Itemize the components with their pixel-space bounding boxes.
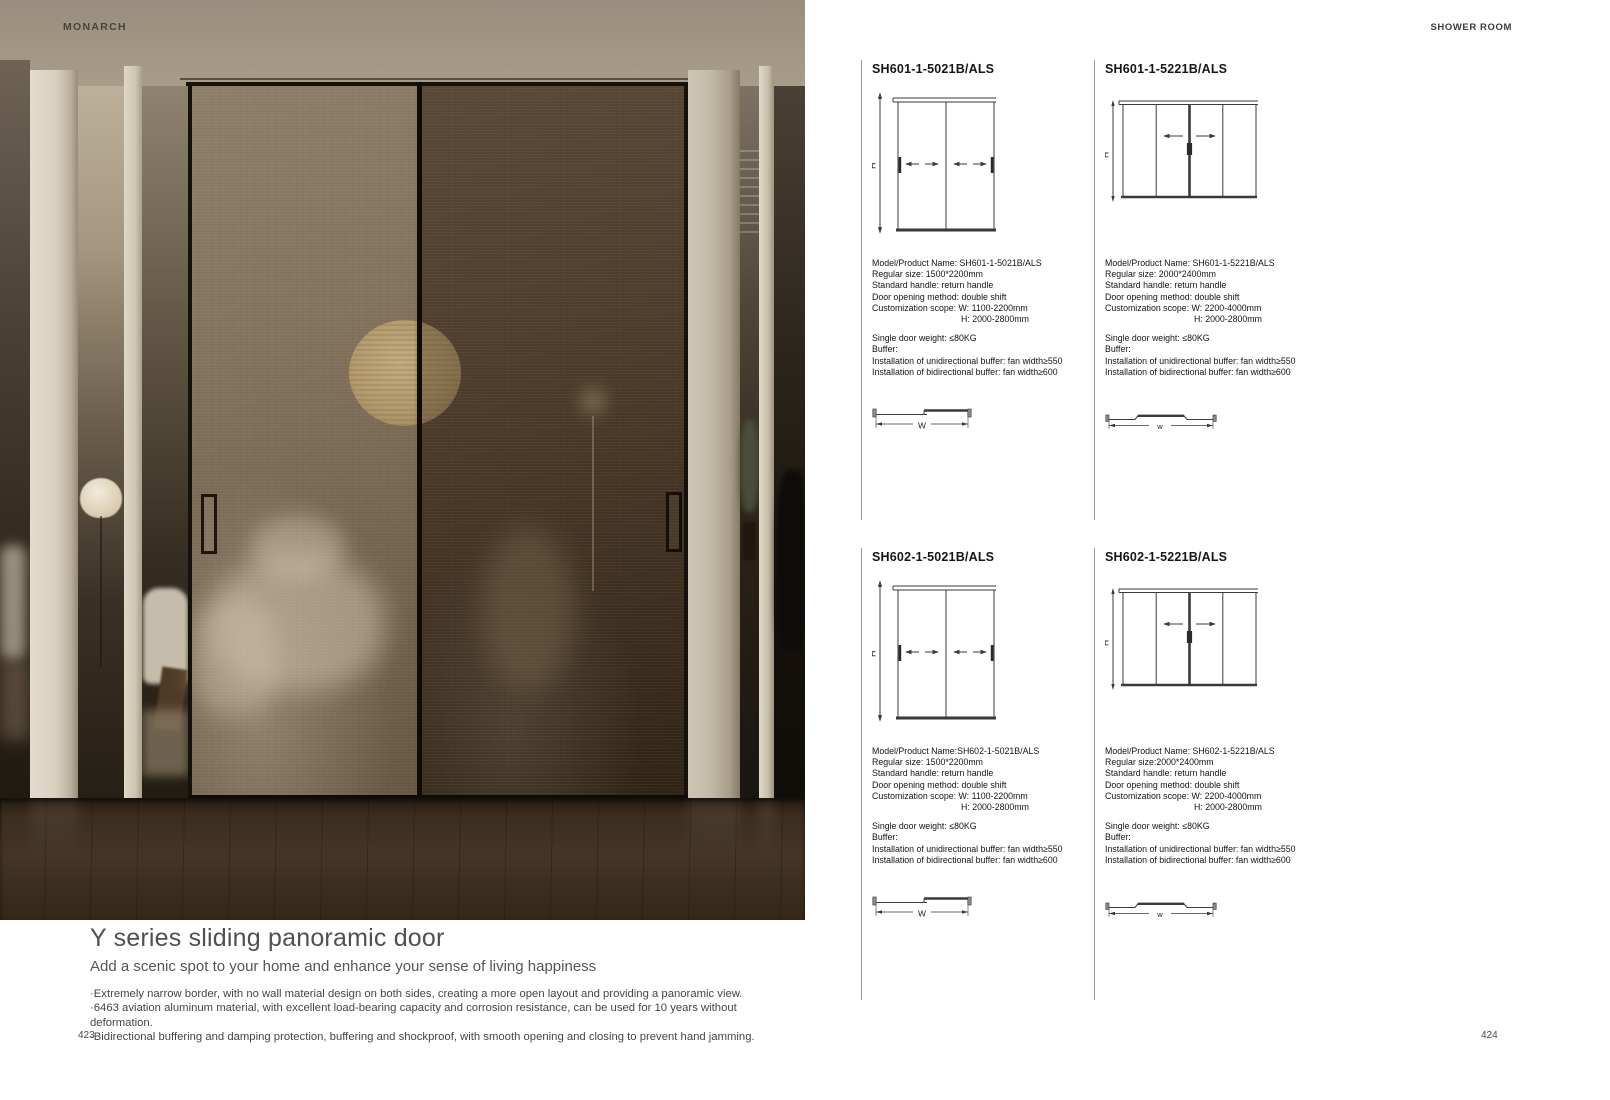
- spec-line: Installation of bidirectional buffer: fa…: [1105, 855, 1341, 866]
- spec-line: Door opening method: double shift: [1105, 292, 1341, 303]
- product-title: SH602-1-5221B/ALS: [1105, 550, 1341, 564]
- track-plan-diagram: w: [1105, 404, 1341, 440]
- width-plan-diagram: w: [1105, 409, 1217, 435]
- width-dimension-label: w: [1156, 910, 1163, 919]
- page-subtitle: Add a scenic spot to your home and enhan…: [90, 958, 770, 975]
- door-frame-top: [186, 82, 688, 86]
- spec-line: H: 2000-2800mm: [872, 314, 1108, 325]
- spec-line: Model/Product Name: SH601-1-5221B/ALS: [1105, 258, 1341, 269]
- photo-floor-reflection: [759, 800, 774, 858]
- height-dimension-label: H: [872, 163, 878, 170]
- spec-line: Standard handle: return handle: [872, 768, 1108, 779]
- spec-line: Installation of bidirectional buffer: fa…: [872, 855, 1108, 866]
- height-dimension-label: H: [1105, 640, 1111, 646]
- spec-line: Buffer:: [1105, 832, 1341, 843]
- photo-ceiling: [0, 0, 805, 86]
- spec-line: Installation of unidirectional buffer: f…: [872, 844, 1108, 855]
- width-plan-diagram: W: [872, 404, 972, 438]
- width-dimension-label: w: [1156, 422, 1163, 431]
- width-plan-diagram: w: [1105, 897, 1217, 923]
- photo-pampas-silhouette: [482, 526, 574, 691]
- showcase-photo: MONARCH: [0, 0, 805, 920]
- photo-left-column: [30, 70, 78, 822]
- caption-block: Y series sliding panoramic door Add a sc…: [90, 924, 770, 1045]
- product-title: SH601-1-5221B/ALS: [1105, 62, 1341, 76]
- sliding-door-right-panel: [420, 86, 686, 800]
- spec-line: Single door weight: ≤80KG: [872, 333, 1108, 344]
- photo-dark-chair-silhouette: [776, 470, 805, 650]
- track-plan-diagram: W: [872, 892, 1108, 931]
- spec-line: Regular size: 1500*2200mm: [872, 757, 1108, 768]
- photo-floor-reflection: [688, 800, 740, 858]
- photo-floor-reflection: [30, 800, 78, 858]
- four-panel-door-diagram: H: [1105, 580, 1261, 696]
- spec-line: Regular size: 1500*2200mm: [872, 269, 1108, 280]
- spec-line: Model/Product Name: SH601-1-5021B/ALS: [872, 258, 1108, 269]
- height-dimension-label: H: [1105, 152, 1111, 158]
- buffer-specs: Single door weight: ≤80KG Buffer: Instal…: [872, 333, 1108, 378]
- photo-floor-lamp-stand: [100, 516, 102, 666]
- width-dimension-label: W: [918, 909, 926, 919]
- feature-bullets: ·Extremely narrow border, with no wall m…: [90, 987, 770, 1045]
- spec-line: Installation of bidirectional buffer: fa…: [872, 367, 1108, 378]
- spec-line: Buffer:: [1105, 344, 1341, 355]
- product-block-sh602-1-5221b: SH602-1-5221B/ALS H Model/Product Name: …: [1094, 548, 1341, 1000]
- page-number-left: 423: [78, 1030, 95, 1041]
- product-specs: Model/Product Name: SH601-1-5221B/ALS Re…: [1105, 258, 1341, 325]
- spec-line: Single door weight: ≤80KG: [1105, 333, 1341, 344]
- door-elevation-diagram: H: [1105, 90, 1341, 258]
- photo-left-pilaster: [124, 66, 142, 826]
- product-block-sh602-1-5021b: SH602-1-5021B/ALS H Model/Product Name:S…: [861, 548, 1108, 1000]
- spec-line: Buffer:: [872, 832, 1108, 843]
- product-specs: Model/Product Name:SH602-1-5021B/ALS Reg…: [872, 746, 1108, 813]
- spec-line: Single door weight: ≤80KG: [872, 821, 1108, 832]
- height-dimension-label: H: [872, 651, 878, 658]
- door-top-track: [180, 78, 694, 80]
- spec-line: Door opening method: double shift: [872, 292, 1108, 303]
- spec-line: Standard handle: return handle: [872, 280, 1108, 291]
- photo-sliver-chair: [0, 545, 26, 660]
- door-handle-left: [201, 494, 217, 554]
- buffer-specs: Single door weight: ≤80KG Buffer: Instal…: [1105, 821, 1341, 866]
- photo-wood-floor: [0, 798, 805, 920]
- section-header: SHOWER ROOM: [1430, 22, 1512, 33]
- width-dimension-label: W: [918, 421, 926, 431]
- door-elevation-diagram: H: [1105, 578, 1341, 746]
- spec-line: Door opening method: double shift: [1105, 780, 1341, 791]
- spec-line: H: 2000-2800mm: [1105, 802, 1341, 813]
- track-plan-diagram: W: [872, 404, 1108, 443]
- spec-line: Installation of unidirectional buffer: f…: [1105, 356, 1341, 367]
- photo-right-dark-area: [774, 86, 805, 820]
- photo-table-items: [743, 522, 756, 560]
- product-title: SH602-1-5021B/ALS: [872, 550, 1108, 564]
- photo-ac-vents: [740, 150, 759, 235]
- spec-line: Customization scope: W: 2200-4000mm: [1105, 791, 1341, 802]
- product-block-sh601-1-5221b: SH601-1-5221B/ALS H Model/Product Name: …: [1094, 60, 1341, 520]
- spec-line: Customization scope: W: 2200-4000mm: [1105, 303, 1341, 314]
- photo-plant: [740, 420, 759, 512]
- spec-line: Regular size:2000*2400mm: [1105, 757, 1341, 768]
- brand-logo: MONARCH: [63, 21, 127, 33]
- feature-bullet: ·Extremely narrow border, with no wall m…: [90, 987, 770, 1001]
- spec-page: SHOWER ROOM SH601-1-5021B/ALS H Model/Pr…: [805, 0, 1610, 1100]
- feature-bullet: ·6463 aviation aluminum material, with e…: [90, 1001, 770, 1030]
- width-plan-diagram: W: [872, 892, 972, 926]
- spec-line: Customization scope: W: 1100-2200mm: [872, 791, 1108, 802]
- photo-lamp-pole-silhouette: [592, 416, 594, 591]
- track-plan-diagram: w: [1105, 892, 1341, 928]
- buffer-specs: Single door weight: ≤80KG Buffer: Instal…: [1105, 333, 1341, 378]
- photo-floor-lamp-shade: [80, 478, 122, 518]
- spec-line: H: 2000-2800mm: [1105, 314, 1341, 325]
- photo-cushion-reflection: [250, 516, 345, 578]
- buffer-specs: Single door weight: ≤80KG Buffer: Instal…: [872, 821, 1108, 866]
- photo-right-pilaster: [759, 66, 774, 828]
- photo-sliver-floor: [0, 660, 30, 740]
- spec-line: Installation of unidirectional buffer: f…: [872, 356, 1108, 367]
- photo-moon-lantern: [349, 320, 461, 426]
- door-handle-right: [666, 492, 682, 552]
- spec-line: Regular size: 2000*2400mm: [1105, 269, 1341, 280]
- spec-line: Installation of unidirectional buffer: f…: [1105, 844, 1341, 855]
- four-panel-door-diagram: H: [1105, 92, 1261, 208]
- product-block-sh601-1-5021b: SH601-1-5021B/ALS H Model/Product Name: …: [861, 60, 1108, 520]
- spec-line: H: 2000-2800mm: [872, 802, 1108, 813]
- photo-rug: [142, 710, 189, 776]
- door-elevation-diagram: H: [872, 90, 1108, 258]
- spec-line: Model/Product Name: SH602-1-5221B/ALS: [1105, 746, 1341, 757]
- spec-line: Customization scope: W: 1100-2200mm: [872, 303, 1108, 314]
- spec-line: Single door weight: ≤80KG: [1105, 821, 1341, 832]
- page-title: Y series sliding panoramic door: [90, 924, 770, 953]
- door-elevation-diagram: H: [872, 578, 1108, 746]
- spec-line: Model/Product Name:SH602-1-5021B/ALS: [872, 746, 1108, 757]
- door-frame-left: [188, 82, 192, 802]
- two-panel-door-diagram: H: [872, 90, 998, 236]
- spec-line: Standard handle: return handle: [1105, 280, 1341, 291]
- photo-lamp-glow: [580, 388, 606, 414]
- product-specs: Model/Product Name: SH602-1-5221B/ALS Re…: [1105, 746, 1341, 813]
- product-title: SH601-1-5021B/ALS: [872, 62, 1108, 76]
- two-panel-door-diagram: H: [872, 578, 998, 724]
- door-frame-middle: [417, 82, 422, 802]
- product-specs: Model/Product Name: SH601-1-5021B/ALS Re…: [872, 258, 1108, 325]
- spec-line: Installation of bidirectional buffer: fa…: [1105, 367, 1341, 378]
- spec-line: Standard handle: return handle: [1105, 768, 1341, 779]
- page-number-right: 424: [1481, 1030, 1498, 1041]
- photo-right-column: [688, 70, 740, 822]
- photo-sofa-arm-reflection: [192, 600, 277, 715]
- spec-line: Door opening method: double shift: [872, 780, 1108, 791]
- feature-bullet: ·Bidirectional buffering and damping pro…: [90, 1030, 770, 1044]
- spec-line: Buffer:: [872, 344, 1108, 355]
- photo-left-opening: [78, 86, 124, 820]
